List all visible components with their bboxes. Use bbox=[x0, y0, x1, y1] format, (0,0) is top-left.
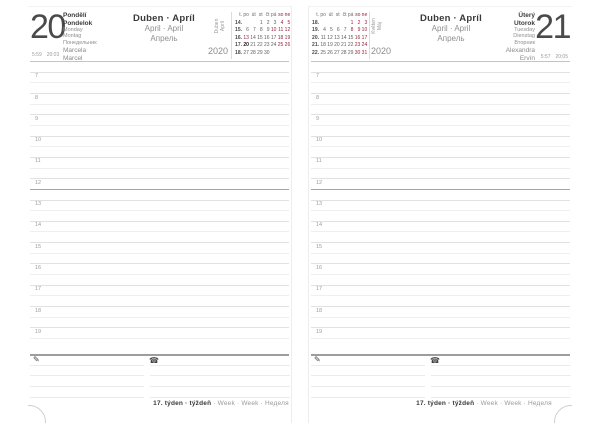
hour-line bbox=[311, 306, 570, 307]
half-hour-line bbox=[311, 253, 570, 254]
half-hour-line bbox=[311, 168, 570, 169]
notes-line bbox=[311, 386, 425, 387]
half-hour-line bbox=[30, 210, 289, 211]
calendar-day: 9 bbox=[354, 27, 361, 35]
calendar-day-header: čt bbox=[264, 12, 271, 20]
hour-label: 17 bbox=[35, 286, 41, 292]
calendar-day-header: ne bbox=[284, 12, 291, 20]
hour-label: 16 bbox=[316, 265, 322, 271]
header-rule bbox=[30, 61, 289, 62]
calendar-day-header: st bbox=[257, 12, 264, 20]
hour-line bbox=[311, 93, 570, 94]
calendar-day: 21 bbox=[341, 42, 348, 50]
calendar-day: 26 bbox=[327, 50, 334, 58]
calendar-day: 7 bbox=[250, 27, 257, 35]
calendar-day: 1 bbox=[257, 20, 264, 28]
calendar-day: 16 bbox=[354, 35, 361, 43]
calendar-divider-rule bbox=[369, 12, 370, 59]
calendar-day: 22 bbox=[257, 42, 264, 50]
calendar-day-header: po bbox=[320, 12, 327, 20]
half-hour-line bbox=[311, 274, 570, 275]
calendar-day: 26 bbox=[284, 42, 291, 50]
calendar-day: 23 bbox=[354, 42, 361, 50]
calendar-day bbox=[250, 20, 257, 28]
sun-times: 5:5920:03 bbox=[32, 52, 59, 58]
hour-label: 13 bbox=[35, 201, 41, 207]
week-footer: 17. týden · týždeň · Week · Week · Недел… bbox=[409, 400, 559, 407]
notes-line bbox=[311, 365, 425, 366]
hour-line bbox=[30, 327, 289, 328]
calendar-week-number: 22. bbox=[311, 50, 320, 58]
week-footer-rest: · Week · Week · Неделя bbox=[211, 400, 289, 407]
pencil-icon: ✎ bbox=[33, 356, 40, 364]
calendar-week-number: 18. bbox=[311, 20, 320, 28]
hour-label: 15 bbox=[316, 244, 322, 250]
calendar-day: 1 bbox=[348, 20, 355, 28]
calendar-week-number: 21. bbox=[311, 42, 320, 50]
day-name-primary: Úterý bbox=[513, 12, 535, 20]
week-footer-bold: 17. týden · týždeň bbox=[153, 400, 211, 407]
hour-label: 11 bbox=[35, 158, 41, 164]
midday-divider-line bbox=[30, 189, 289, 190]
half-hour-line bbox=[30, 253, 289, 254]
notes-line bbox=[150, 365, 290, 366]
hour-line bbox=[311, 285, 570, 286]
calendar-week-number: 18. bbox=[234, 50, 243, 58]
calendar-day: 13 bbox=[243, 35, 250, 43]
phone-icon: ☎ bbox=[149, 357, 159, 365]
hour-line bbox=[311, 242, 570, 243]
calendar-day: 12 bbox=[284, 27, 291, 35]
hour-line bbox=[311, 327, 570, 328]
calendar-day bbox=[327, 20, 334, 28]
calendar-day: 22 bbox=[348, 42, 355, 50]
phone-icon: ☎ bbox=[430, 357, 440, 365]
calendar-day: 21 bbox=[250, 42, 257, 50]
day-names: PondělíPondelokMondayMontagПонедельник bbox=[63, 12, 97, 46]
calendar-day: 2 bbox=[354, 20, 361, 28]
half-hour-line bbox=[30, 168, 289, 169]
calendar-day: 17 bbox=[271, 35, 278, 43]
hour-line bbox=[30, 178, 289, 179]
hour-line bbox=[30, 157, 289, 158]
month-title-line1: Duben · Apríl bbox=[122, 13, 206, 24]
calendar-day: 24 bbox=[361, 42, 368, 50]
half-hour-line bbox=[311, 210, 570, 211]
half-hour-line bbox=[30, 146, 289, 147]
hour-label: 10 bbox=[316, 137, 322, 143]
calendar-day bbox=[243, 20, 250, 28]
half-hour-line bbox=[30, 295, 289, 296]
notes-line bbox=[150, 397, 290, 398]
day-number: 20 bbox=[30, 10, 65, 44]
half-hour-line bbox=[30, 125, 289, 126]
half-hour-line bbox=[311, 295, 570, 296]
notes-line bbox=[30, 386, 144, 387]
hour-line bbox=[311, 200, 570, 201]
calendar-week-number: 14. bbox=[234, 20, 243, 28]
day-number: 21 bbox=[535, 10, 570, 44]
calendar-day: 14 bbox=[341, 35, 348, 43]
hour-line bbox=[311, 72, 570, 73]
calendar-day: 5 bbox=[284, 20, 291, 28]
hour-line bbox=[311, 157, 570, 158]
calendar-day: 11 bbox=[320, 35, 327, 43]
half-hour-line bbox=[311, 317, 570, 318]
calendar-day: 10 bbox=[361, 27, 368, 35]
calendar-week-number: 17. bbox=[234, 42, 243, 50]
calendar-day: 20 bbox=[243, 42, 250, 50]
half-hour-line bbox=[311, 82, 570, 83]
month-title-line1: Duben · Apríl bbox=[409, 13, 493, 24]
calendar-day: 14 bbox=[250, 35, 257, 43]
hour-label: 8 bbox=[35, 95, 38, 101]
month-vertical-label: DubenApríl bbox=[215, 7, 227, 45]
hour-line bbox=[311, 178, 570, 179]
month-vertical-label: KvětenMáj bbox=[372, 7, 384, 45]
calendar-day: 5 bbox=[327, 27, 334, 35]
half-hour-line bbox=[30, 82, 289, 83]
hour-label: 15 bbox=[35, 244, 41, 250]
calendar-day: 3 bbox=[271, 20, 278, 28]
month-title-line3: Апрель bbox=[122, 34, 206, 44]
hour-line bbox=[30, 221, 289, 222]
hour-label: 9 bbox=[316, 116, 319, 122]
page-corner-arc bbox=[554, 405, 572, 423]
hour-label: 19 bbox=[316, 329, 322, 335]
name-day: Marcela bbox=[63, 47, 86, 55]
hour-label: 7 bbox=[35, 73, 38, 79]
calendar-day bbox=[271, 50, 278, 58]
calendar-day-header: st bbox=[334, 12, 341, 20]
calendar-day: 4 bbox=[320, 27, 327, 35]
notes-line bbox=[431, 386, 571, 387]
hour-label: 19 bbox=[35, 329, 41, 335]
day-name-secondary: Dienstag bbox=[513, 33, 535, 39]
hour-label: 18 bbox=[316, 308, 322, 314]
calendar-day: 29 bbox=[348, 50, 355, 58]
notes-divider-line bbox=[30, 354, 289, 356]
calendar-day: 25 bbox=[320, 50, 327, 58]
day-name-primary: Pondelok bbox=[63, 20, 97, 28]
week-footer: 17. týden · týždeň · Week · Week · Недел… bbox=[146, 400, 292, 407]
month-vertical-line: Apríl bbox=[221, 7, 227, 45]
hour-line bbox=[311, 263, 570, 264]
calendar-day: 10 bbox=[271, 27, 278, 35]
calendar-day: 8 bbox=[348, 27, 355, 35]
hour-line bbox=[30, 263, 289, 264]
half-hour-line bbox=[30, 104, 289, 105]
calendar-day bbox=[334, 20, 341, 28]
calendar-day-header: po bbox=[243, 12, 250, 20]
diary-page-right: 215:5720:05ÚterýUtorokTuesdayDienstagВто… bbox=[308, 6, 572, 423]
calendar-day bbox=[341, 20, 348, 28]
calendar-day: 13 bbox=[334, 35, 341, 43]
month-title: Duben · AprílApril · AprilАпрель bbox=[122, 13, 206, 44]
sunrise-time: 5:59 bbox=[32, 52, 42, 58]
hour-line bbox=[30, 72, 289, 73]
name-day: Alexandra bbox=[506, 47, 535, 55]
calendar-day: 27 bbox=[243, 50, 250, 58]
sun-times: 5:5720:05 bbox=[541, 54, 568, 60]
calendar-day: 30 bbox=[264, 50, 271, 58]
sunrise-time: 5:57 bbox=[541, 54, 551, 60]
hour-line bbox=[30, 285, 289, 286]
calendar-day-header: út bbox=[327, 12, 334, 20]
calendar-day: 19 bbox=[284, 35, 291, 43]
calendar-day: 30 bbox=[354, 50, 361, 58]
sunset-time: 20:05 bbox=[555, 54, 568, 60]
calendar-day: 8 bbox=[257, 27, 264, 35]
calendar-day: 6 bbox=[334, 27, 341, 35]
hour-label: 10 bbox=[35, 137, 41, 143]
name-days: MarcelaMarcel bbox=[63, 47, 86, 62]
half-hour-line bbox=[311, 338, 570, 339]
calendar-day: 15 bbox=[348, 35, 355, 43]
hour-label: 18 bbox=[35, 308, 41, 314]
diary-page-left: 205:5920:03PondělíPondelokMondayMontagПо… bbox=[28, 6, 292, 423]
day-name-primary: Pondělí bbox=[63, 12, 97, 20]
half-hour-line bbox=[311, 104, 570, 105]
calendar-day: 31 bbox=[361, 50, 368, 58]
half-hour-line bbox=[30, 231, 289, 232]
notes-line bbox=[311, 375, 425, 376]
year-label: 2020 bbox=[371, 46, 405, 56]
hour-line bbox=[311, 136, 570, 137]
calendar-day: 28 bbox=[341, 50, 348, 58]
hour-label: 9 bbox=[35, 116, 38, 122]
hour-label: 8 bbox=[316, 95, 319, 101]
calendar-day bbox=[284, 50, 291, 58]
calendar-day: 17 bbox=[361, 35, 368, 43]
calendar-day: 27 bbox=[334, 50, 341, 58]
week-footer-bold: 17. týden · týždeň bbox=[416, 400, 474, 407]
hour-line bbox=[30, 242, 289, 243]
pencil-icon: ✎ bbox=[314, 356, 321, 364]
week-footer-rest: · Week · Week · Неделя bbox=[474, 400, 552, 407]
calendar-day-header: út bbox=[250, 12, 257, 20]
day-name-secondary: Понедельник bbox=[63, 40, 97, 46]
hour-label: 12 bbox=[316, 180, 322, 186]
hour-line bbox=[30, 114, 289, 115]
hour-line bbox=[30, 306, 289, 307]
calendar-day: 16 bbox=[264, 35, 271, 43]
half-hour-line bbox=[30, 317, 289, 318]
calendar-day-header: so bbox=[277, 12, 284, 20]
calendar-day: 18 bbox=[320, 42, 327, 50]
calendar-day: 7 bbox=[341, 27, 348, 35]
mini-calendar: t.poútstčtpásone18.12319.4567891020.1112… bbox=[311, 12, 368, 58]
calendar-day: 25 bbox=[277, 42, 284, 50]
calendar-day-header: so bbox=[354, 12, 361, 20]
half-hour-line bbox=[30, 338, 289, 339]
calendar-day bbox=[320, 20, 327, 28]
notes-line bbox=[30, 365, 144, 366]
hour-label: 7 bbox=[316, 73, 319, 79]
calendar-day: 9 bbox=[264, 27, 271, 35]
hour-label: 14 bbox=[35, 222, 41, 228]
calendar-day: 6 bbox=[243, 27, 250, 35]
notes-line bbox=[431, 397, 571, 398]
mini-calendar: t.poútstčtpásone14.1234515.678910111216.… bbox=[234, 12, 291, 58]
half-hour-line bbox=[30, 274, 289, 275]
name-days: AlexandraErvín bbox=[506, 47, 535, 62]
month-title-line2: April · April bbox=[409, 24, 493, 34]
calendar-day-header: ne bbox=[361, 12, 368, 20]
calendar-day-header: pá bbox=[271, 12, 278, 20]
page-corner-arc bbox=[28, 405, 46, 423]
notes-line bbox=[150, 375, 290, 376]
hour-label: 17 bbox=[316, 286, 322, 292]
half-hour-line bbox=[311, 231, 570, 232]
hour-line bbox=[311, 221, 570, 222]
calendar-week-number: 20. bbox=[311, 35, 320, 43]
calendar-day: 18 bbox=[277, 35, 284, 43]
calendar-day: 4 bbox=[277, 20, 284, 28]
midday-divider-line bbox=[311, 189, 570, 190]
hour-label: 12 bbox=[35, 180, 41, 186]
hour-label: 16 bbox=[35, 265, 41, 271]
calendar-day-header: čt bbox=[341, 12, 348, 20]
hour-label: 11 bbox=[316, 158, 322, 164]
calendar-divider-rule bbox=[231, 12, 232, 59]
sunset-time: 20:03 bbox=[47, 52, 60, 58]
calendar-week-number: 19. bbox=[311, 27, 320, 35]
calendar-day: 20 bbox=[334, 42, 341, 50]
half-hour-line bbox=[311, 125, 570, 126]
calendar-day: 28 bbox=[250, 50, 257, 58]
calendar-day: 29 bbox=[257, 50, 264, 58]
calendar-day: 11 bbox=[277, 27, 284, 35]
header-rule bbox=[311, 61, 570, 62]
notes-line bbox=[30, 375, 144, 376]
calendar-day-header: t. bbox=[311, 12, 320, 20]
calendar-day: 24 bbox=[271, 42, 278, 50]
hour-line bbox=[30, 200, 289, 201]
notes-divider-line bbox=[311, 354, 570, 356]
calendar-day: 23 bbox=[264, 42, 271, 50]
notes-line bbox=[150, 386, 290, 387]
calendar-day bbox=[277, 50, 284, 58]
calendar-day: 15 bbox=[257, 35, 264, 43]
notes-line bbox=[431, 365, 571, 366]
day-names: ÚterýUtorokTuesdayDienstagВторник bbox=[513, 12, 535, 46]
calendar-day: 19 bbox=[327, 42, 334, 50]
calendar-day: 12 bbox=[327, 35, 334, 43]
year-label: 2020 bbox=[194, 46, 228, 56]
notes-line bbox=[30, 397, 144, 398]
month-title: Duben · AprílApril · AprilАпрель bbox=[409, 13, 493, 44]
calendar-day: 2 bbox=[264, 20, 271, 28]
notes-line bbox=[311, 397, 425, 398]
hour-label: 13 bbox=[316, 201, 322, 207]
month-vertical-line: Máj bbox=[378, 7, 384, 45]
diary-spread: 205:5920:03PondělíPondelokMondayMontagПо… bbox=[0, 0, 600, 429]
calendar-day-header: t. bbox=[234, 12, 243, 20]
month-title-line2: April · April bbox=[122, 24, 206, 34]
hour-line bbox=[311, 114, 570, 115]
half-hour-line bbox=[311, 146, 570, 147]
hour-line bbox=[30, 93, 289, 94]
calendar-day-header: pá bbox=[348, 12, 355, 20]
day-name-secondary: Вторник bbox=[513, 40, 535, 46]
notes-line bbox=[431, 375, 571, 376]
hour-line bbox=[30, 136, 289, 137]
day-name-primary: Utorok bbox=[513, 20, 535, 28]
calendar-week-number: 15. bbox=[234, 27, 243, 35]
hour-label: 14 bbox=[316, 222, 322, 228]
calendar-day: 3 bbox=[361, 20, 368, 28]
month-title-line3: Апрель bbox=[409, 34, 493, 44]
calendar-week-number: 16. bbox=[234, 35, 243, 43]
